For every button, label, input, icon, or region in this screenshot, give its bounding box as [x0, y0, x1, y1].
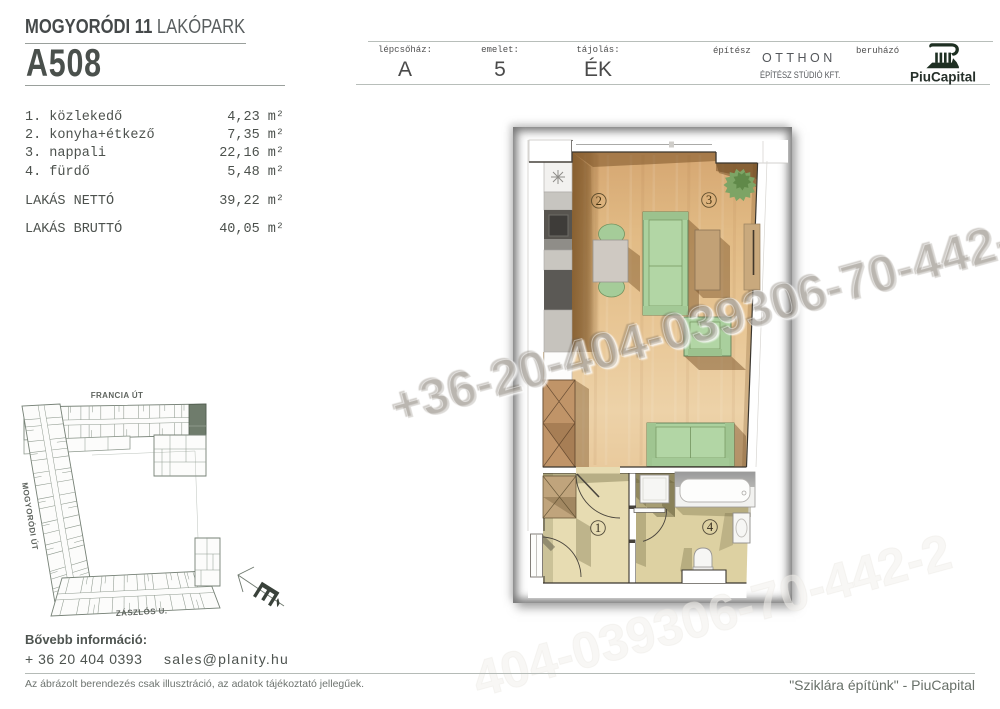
svg-text:4: 4	[707, 520, 714, 534]
svg-text:2: 2	[596, 194, 602, 208]
svg-text:PiuCapital: PiuCapital	[910, 70, 976, 85]
svg-text:É: É	[246, 576, 285, 611]
svg-text:ZÁSZLÓS U.: ZÁSZLÓS U.	[116, 606, 168, 618]
svg-text:FRANCIA ÚT: FRANCIA ÚT	[91, 391, 144, 400]
svg-text:3: 3	[706, 193, 712, 207]
svg-text:1: 1	[595, 521, 601, 535]
